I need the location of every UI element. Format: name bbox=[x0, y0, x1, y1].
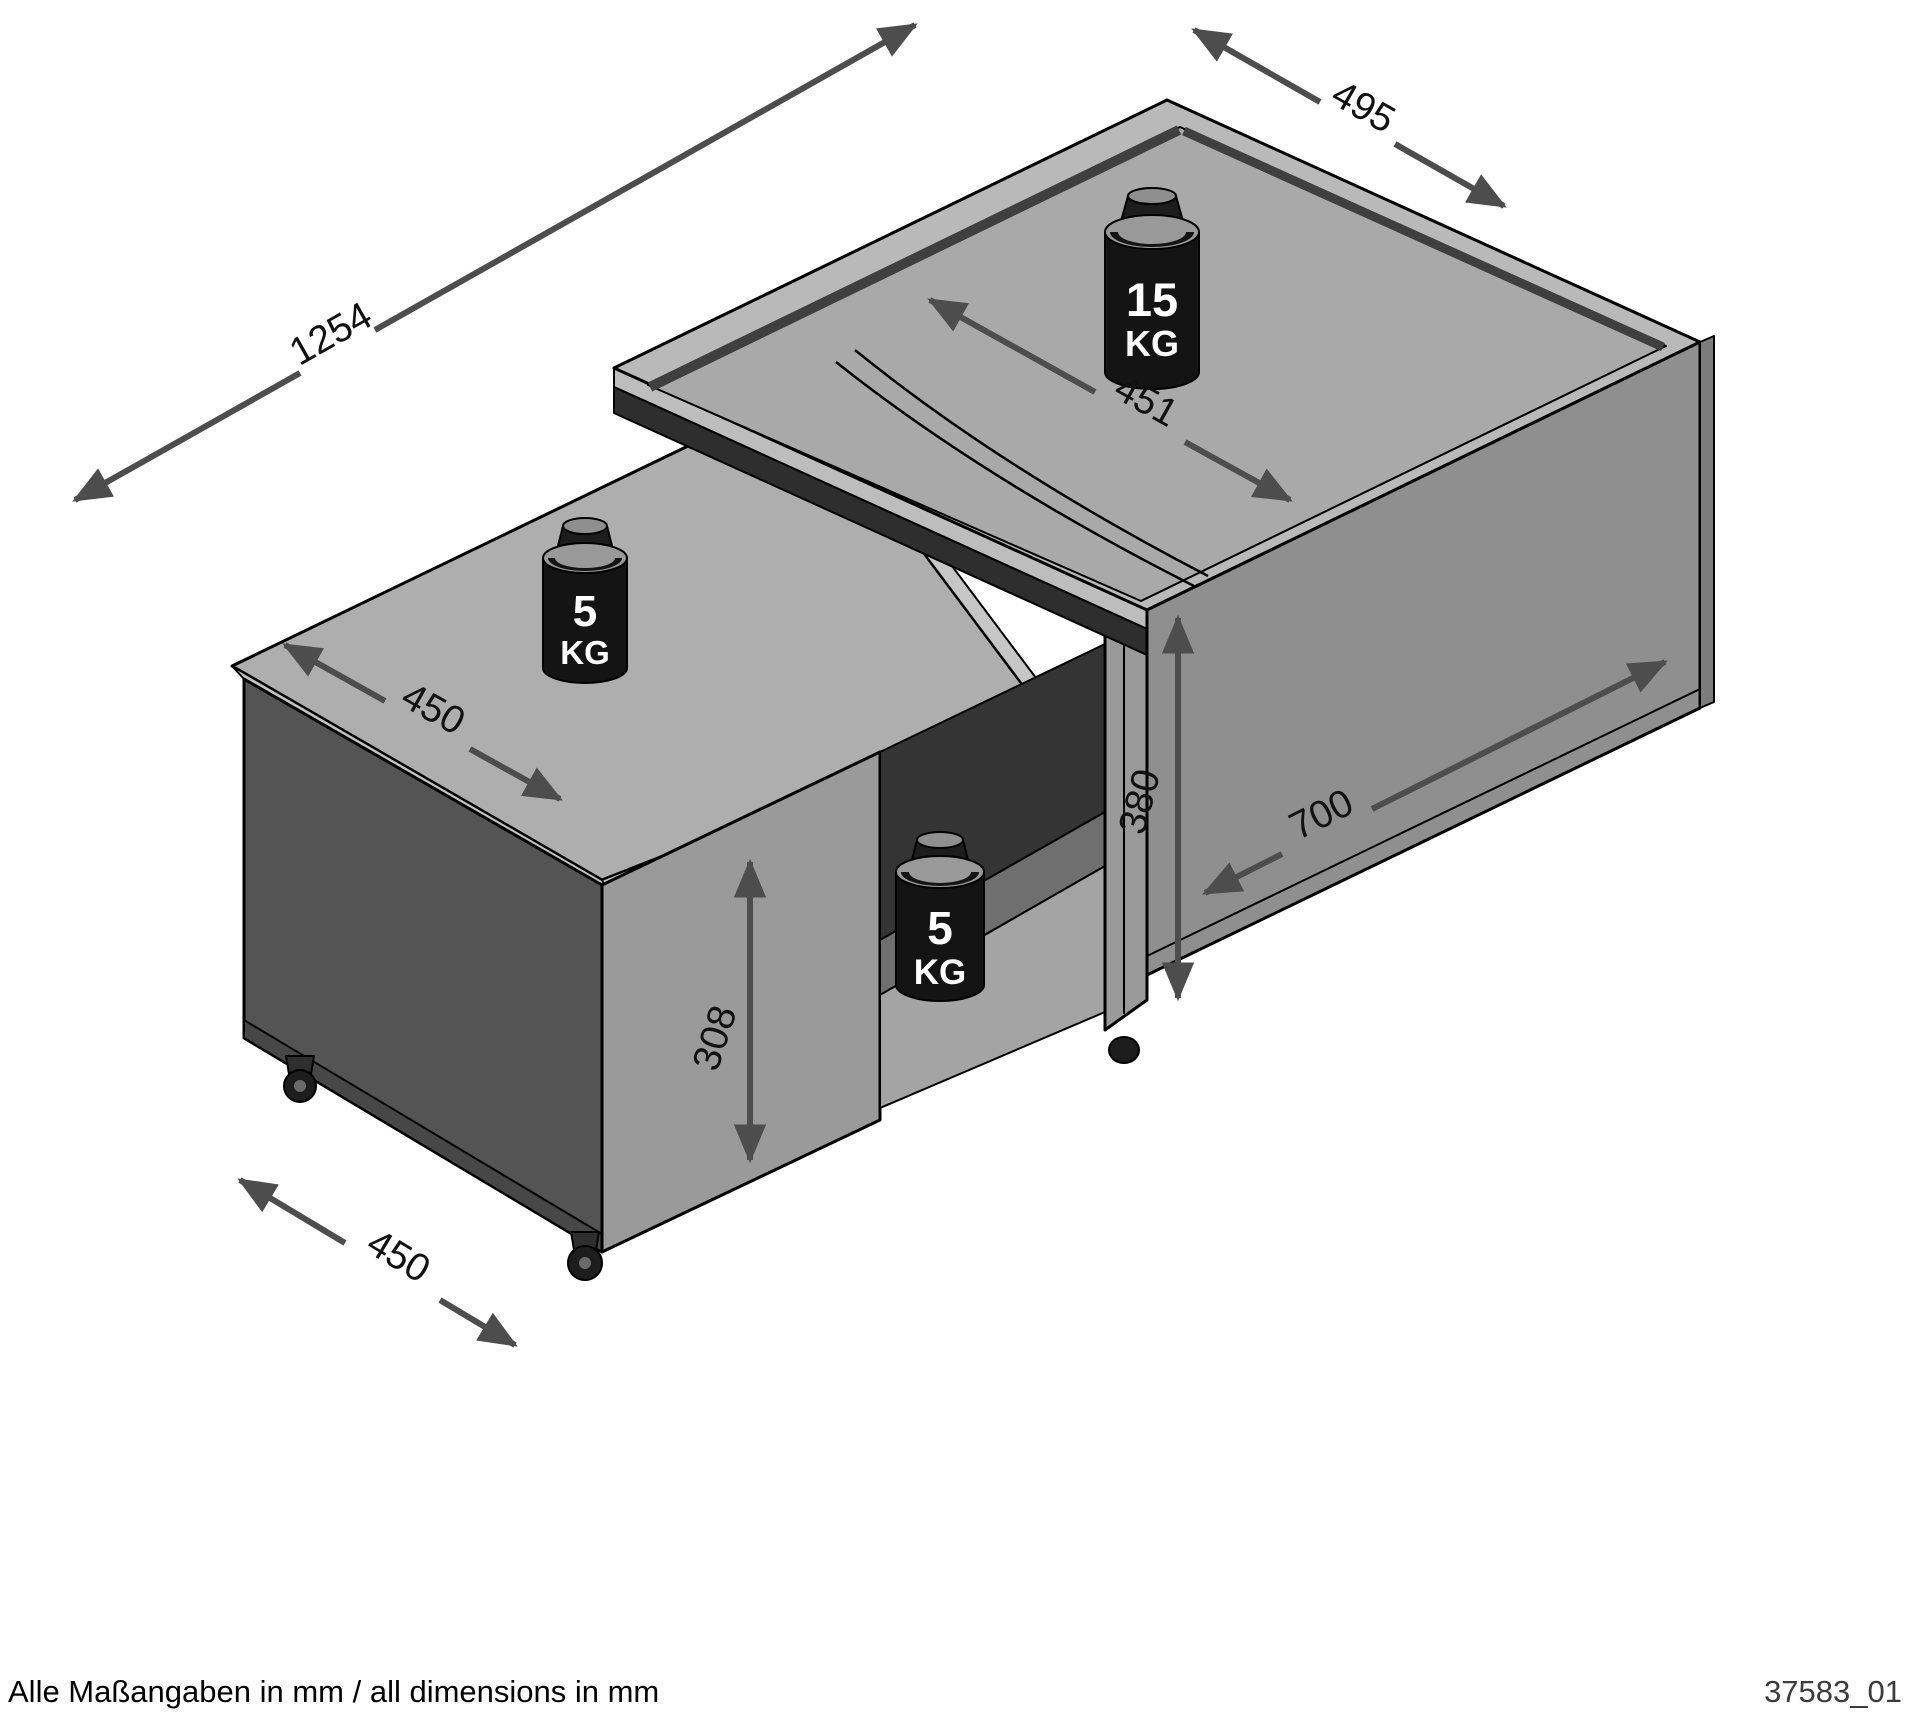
slide-top-load-unit: KG bbox=[560, 634, 610, 671]
dim-base-depth-label: 450 bbox=[359, 1221, 437, 1291]
drawing-number: 37583_01 bbox=[1764, 1674, 1902, 1709]
shelf-load-unit: KG bbox=[914, 953, 967, 992]
slide-top-load-value: 5 bbox=[573, 587, 597, 636]
top-load-unit: KG bbox=[1125, 323, 1179, 364]
caster-wheel-divider bbox=[1109, 1037, 1139, 1063]
divider-panel bbox=[1105, 630, 1147, 1063]
top-load-value: 15 bbox=[1126, 273, 1178, 326]
dim-total-length-label: 1254 bbox=[282, 294, 379, 374]
furniture-dimension-diagram: 5 KG 5 KG bbox=[0, 0, 1910, 1735]
technical-drawing-page: 5 KG 5 KG bbox=[0, 0, 1910, 1735]
main-right-edge bbox=[1700, 336, 1714, 708]
footer-note: Alle Maßangaben in mm / all dimensions i… bbox=[8, 1674, 659, 1709]
shelf-load-value: 5 bbox=[927, 902, 953, 954]
dim-total-depth-label: 495 bbox=[1324, 72, 1402, 142]
dim-base-depth: 450 bbox=[240, 1180, 515, 1345]
